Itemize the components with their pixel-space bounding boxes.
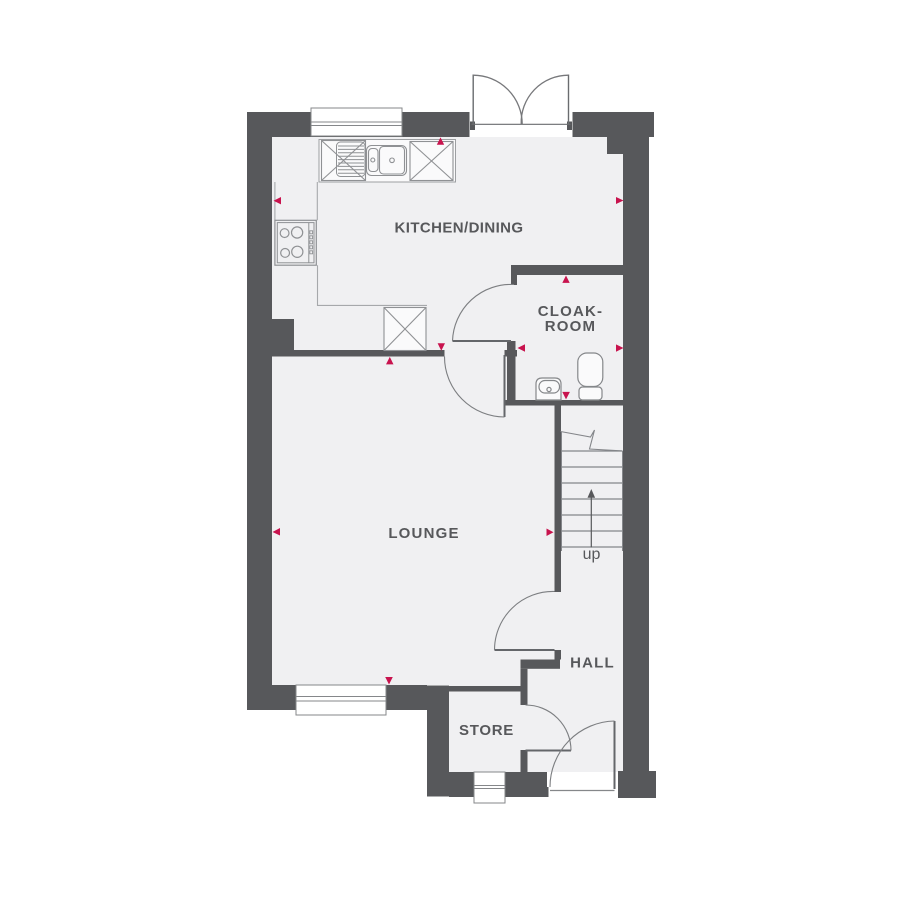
svg-text:HALL: HALL xyxy=(570,655,615,672)
svg-text:ROOM: ROOM xyxy=(545,318,596,335)
svg-text:LOUNGE: LOUNGE xyxy=(388,525,459,542)
svg-text:STORE: STORE xyxy=(459,722,514,739)
svg-text:up: up xyxy=(583,546,601,563)
svg-text:KITCHEN/DINING: KITCHEN/DINING xyxy=(395,220,524,237)
